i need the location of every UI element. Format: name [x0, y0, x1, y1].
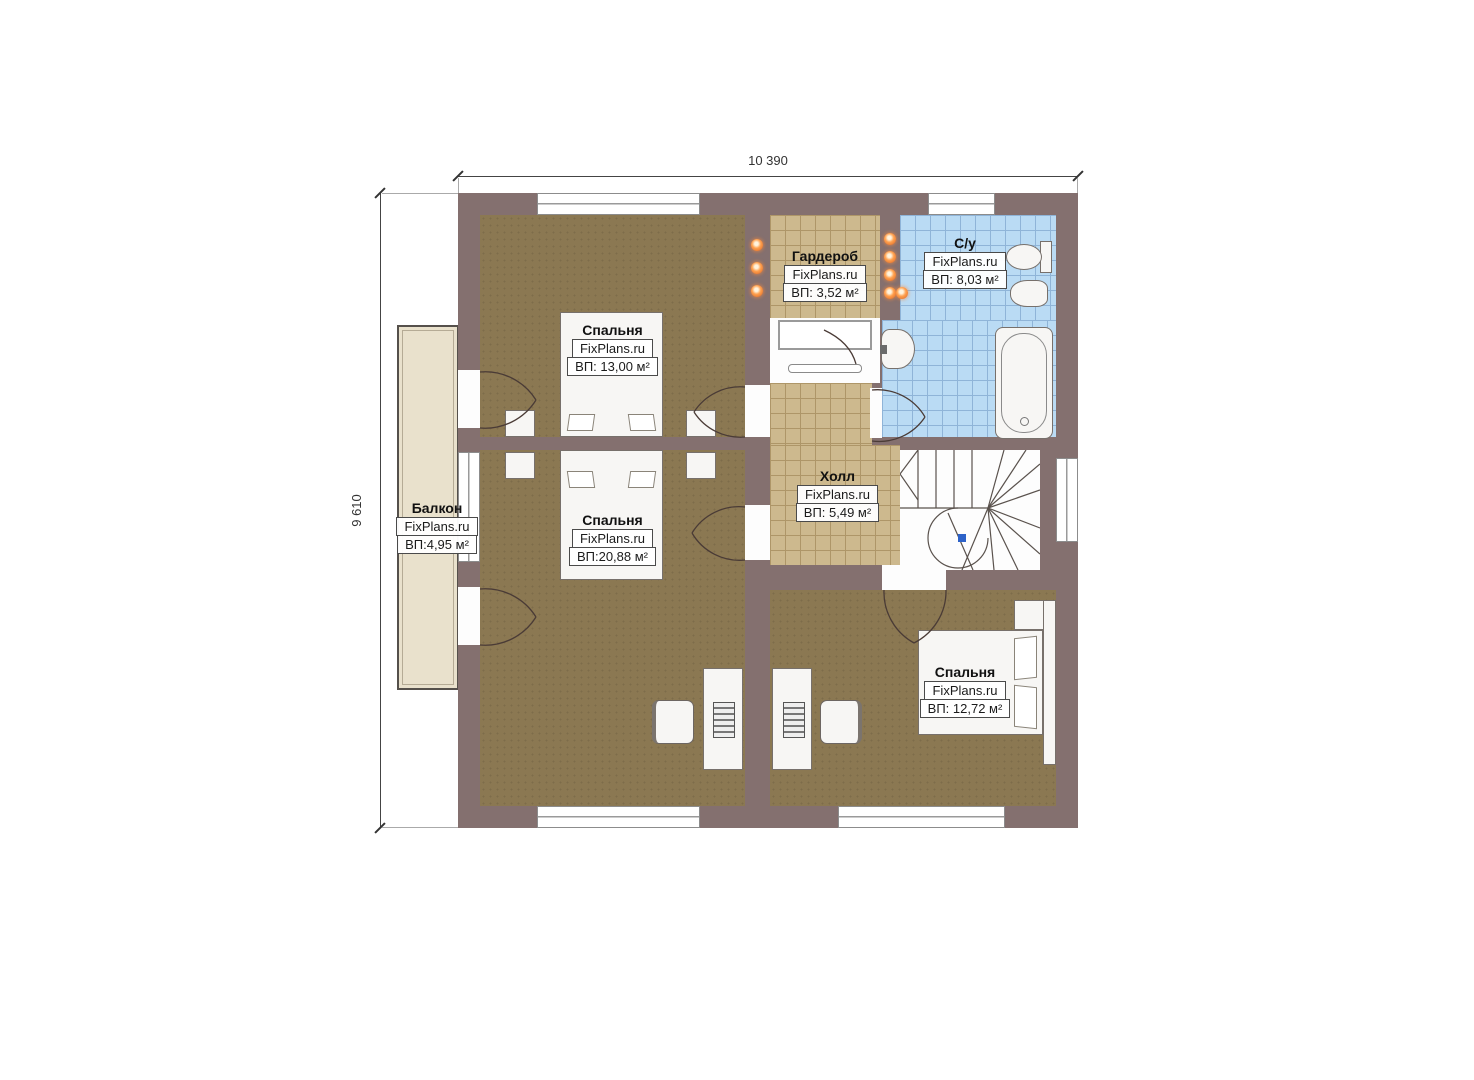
- watermark: FixPlans.ru: [797, 485, 878, 504]
- desk-left: [703, 668, 743, 770]
- room-area: ВП: 8,03 м²: [923, 270, 1006, 289]
- nightstand: [505, 410, 535, 437]
- nightstand: [686, 410, 716, 437]
- extension-line: [382, 193, 458, 194]
- room-name: Спальня: [885, 664, 1045, 680]
- wardrobe-door-leaf: [788, 364, 862, 373]
- watermark: FixPlans.ru: [924, 681, 1005, 700]
- room-area: ВП:4,95 м²: [397, 535, 477, 554]
- extension-line: [382, 827, 458, 828]
- room-name: С/у: [885, 235, 1045, 251]
- stairs: [900, 450, 1040, 570]
- floor-plan-page: 10 390 9 610: [0, 0, 1474, 1080]
- room-label-balcony: Балкон FixPlans.ru ВП:4,95 м²: [394, 500, 480, 554]
- extension-line: [1077, 178, 1078, 193]
- office-chair: [652, 700, 694, 744]
- nightstand: [686, 452, 716, 479]
- dimension-height-label: 9 610: [340, 193, 373, 828]
- room-label-wardrobe: Гардероб FixPlans.ru ВП: 3,52 м²: [762, 248, 888, 302]
- watermark: FixPlans.ru: [784, 265, 865, 284]
- room-name: Гардероб: [762, 248, 888, 264]
- dimension-width-line: [458, 176, 1078, 177]
- room-area: ВП:20,88 м²: [569, 547, 656, 566]
- nightstand: [1014, 600, 1044, 630]
- hall-upper-floor: [770, 383, 872, 445]
- room-name: Балкон: [394, 500, 480, 516]
- bathroom-door-opening: [870, 388, 882, 438]
- room-name: Холл: [775, 468, 900, 484]
- room-label-hall: Холл FixPlans.ru ВП: 5,49 м²: [775, 468, 900, 522]
- watermark: FixPlans.ru: [572, 339, 653, 358]
- stair-marker: [958, 534, 966, 542]
- desk-right: [772, 668, 812, 770]
- balcony-door-top-opening: [458, 370, 480, 428]
- bathtub: [995, 327, 1053, 439]
- watermark: FixPlans.ru: [572, 529, 653, 548]
- room-area: ВП: 12,72 м²: [920, 699, 1011, 718]
- room-name: Спальня: [530, 512, 695, 528]
- dimension-width-label: 10 390: [458, 153, 1078, 168]
- room-name: Спальня: [530, 322, 695, 338]
- extension-line: [458, 178, 459, 193]
- balcony-door-bottom-opening: [458, 587, 480, 645]
- window-bottom-right: [838, 806, 1005, 828]
- room-label-bedroom-mid: Спальня FixPlans.ru ВП:20,88 м²: [530, 512, 695, 566]
- nightstand: [505, 452, 535, 479]
- room-label-bathroom: С/у FixPlans.ru ВП: 8,03 м²: [885, 235, 1045, 289]
- room-area: ВП: 13,00 м²: [567, 357, 658, 376]
- window-right-stairs: [1056, 458, 1078, 542]
- watermark: FixPlans.ru: [396, 517, 477, 536]
- watermark: FixPlans.ru: [924, 252, 1005, 271]
- window-top-left: [537, 193, 700, 215]
- sink: [881, 329, 915, 369]
- bedroom-top-door-opening: [745, 385, 770, 437]
- bedroom-mid-door-opening: [745, 505, 770, 560]
- room-label-bedroom-right: Спальня FixPlans.ru ВП: 12,72 м²: [885, 664, 1045, 718]
- room-area: ВП: 3,52 м²: [783, 283, 866, 302]
- wardrobe-door-frame: [778, 320, 872, 350]
- room-area: ВП: 5,49 м²: [796, 503, 879, 522]
- office-chair: [820, 700, 862, 744]
- room-label-bedroom-top: Спальня FixPlans.ru ВП: 13,00 м²: [530, 322, 695, 376]
- window-bottom-left: [537, 806, 700, 828]
- window-top-right: [928, 193, 995, 215]
- dimension-height-line: [380, 193, 381, 828]
